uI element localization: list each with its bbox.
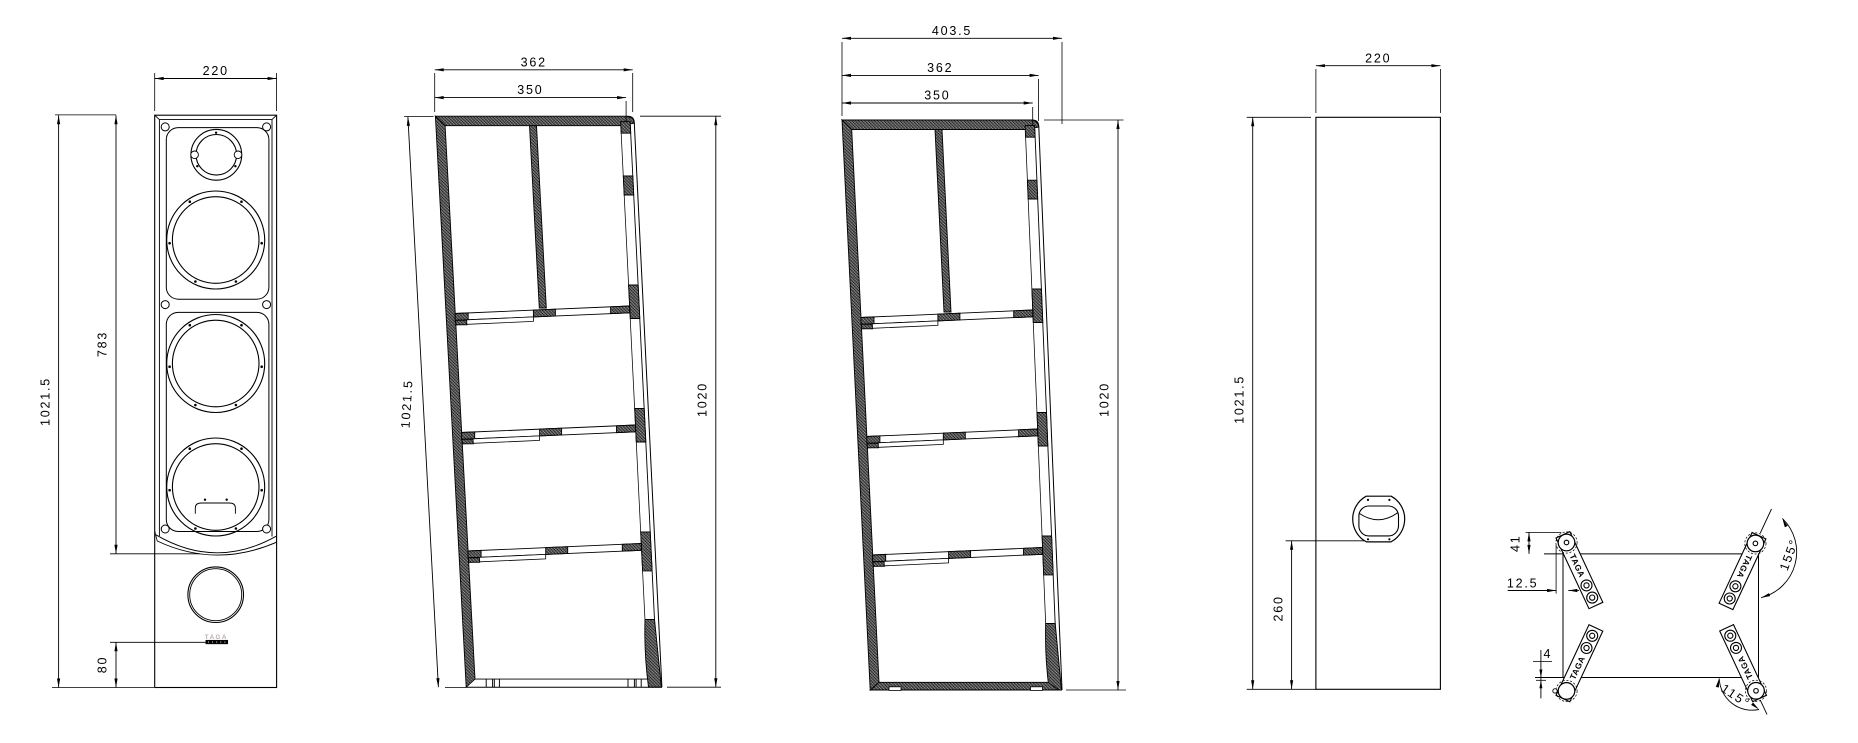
svg-text:12.5: 12.5 (1507, 577, 1539, 591)
svg-text:1021.5: 1021.5 (1232, 375, 1246, 424)
svg-text:783: 783 (96, 331, 110, 357)
svg-text:4: 4 (1544, 647, 1551, 661)
svg-text:1021.5: 1021.5 (399, 379, 416, 429)
svg-text:220: 220 (203, 64, 229, 78)
svg-text:260: 260 (1271, 595, 1285, 621)
svg-text:220: 220 (1365, 51, 1391, 65)
svg-text:1020: 1020 (1098, 382, 1112, 417)
svg-text:1020: 1020 (696, 382, 710, 417)
svg-text:350: 350 (924, 89, 950, 103)
svg-text:403.5: 403.5 (932, 24, 972, 38)
svg-text:41: 41 (1509, 534, 1523, 552)
svg-text:1021.5: 1021.5 (39, 377, 53, 426)
svg-text:80: 80 (96, 656, 110, 674)
svg-text:362: 362 (927, 61, 953, 75)
svg-text:362: 362 (521, 55, 547, 69)
svg-text:350: 350 (517, 83, 543, 97)
